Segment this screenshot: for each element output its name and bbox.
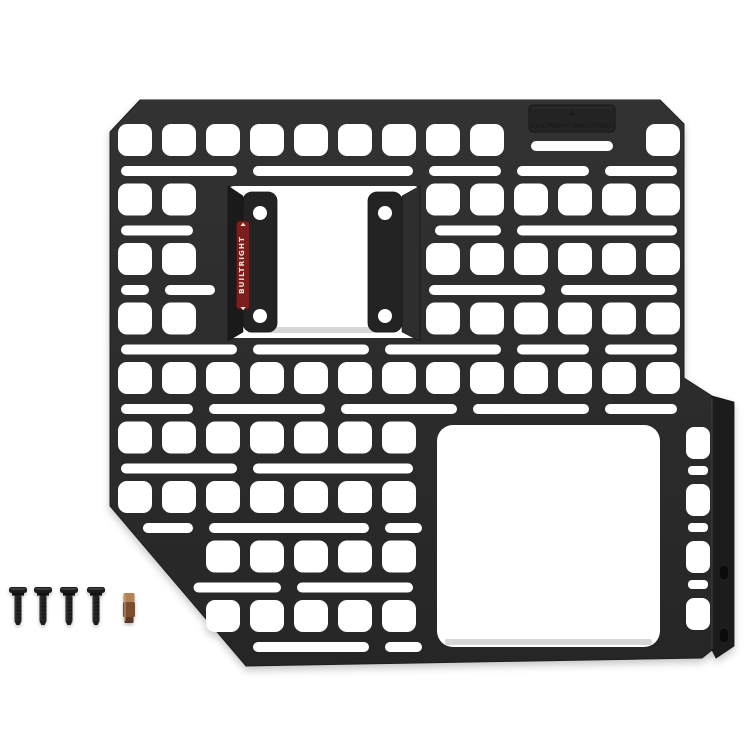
panel-slot: [209, 523, 369, 533]
screw: [9, 587, 27, 625]
flange-bolt-hole: [720, 566, 728, 579]
panel-hole: [338, 124, 372, 156]
panel-hole: [382, 362, 416, 394]
panel-hole: [118, 422, 152, 454]
panel-hole: [646, 243, 680, 275]
panel-slot: [517, 345, 589, 355]
panel-hole: [294, 124, 328, 156]
panel-slot: [121, 464, 237, 474]
panel-slot: [121, 166, 237, 176]
left-bracket-bolt-hole: [253, 206, 267, 220]
panel-slot: [385, 345, 501, 355]
panel-hole: [162, 481, 196, 513]
right-bracket-bolt-hole: [378, 206, 392, 220]
panel-slot: [429, 285, 545, 295]
panel-hole: [162, 184, 196, 216]
panel-hole: [686, 598, 710, 630]
flange-face: [712, 396, 734, 658]
panel-hole: [206, 600, 240, 632]
panel-hole: [382, 124, 416, 156]
panel-hole: [514, 184, 548, 216]
screw-neck: [90, 593, 102, 596]
panel-hole: [294, 600, 328, 632]
panel-hole: [294, 481, 328, 513]
panel-hole: [338, 600, 372, 632]
panel-hole: [382, 600, 416, 632]
screw: [34, 587, 52, 625]
screw-head-highlight: [11, 588, 26, 590]
panel-slot: [385, 642, 422, 652]
panel-hole: [686, 484, 710, 516]
panel-hole: [558, 362, 592, 394]
right-bracket-bolt-hole: [378, 309, 392, 323]
panel-slot: [605, 404, 677, 414]
panel-hole: [118, 184, 152, 216]
panel-hole: [206, 124, 240, 156]
panel-hole: [646, 303, 680, 335]
panel-hole: [206, 481, 240, 513]
panel-hole: [646, 124, 680, 156]
badge-text: BUILTRIGHT INDUSTRIES: [531, 124, 613, 130]
panel-slot: [688, 580, 708, 589]
panel-hole: [294, 422, 328, 454]
mounting-hardware: [9, 587, 135, 625]
panel-hole: [470, 243, 504, 275]
panel-slot: [561, 285, 677, 295]
panel-hole: [470, 362, 504, 394]
screw-head-highlight: [89, 588, 104, 590]
panel-slot: [385, 523, 422, 533]
mounting-flange: [712, 396, 734, 658]
screw-shaft-highlight: [93, 597, 95, 621]
panel-hole: [470, 184, 504, 216]
panel-hole: [206, 362, 240, 394]
panel-hole: [118, 124, 152, 156]
right-bracket-slant-face: [402, 186, 420, 341]
panel-hole: [206, 541, 240, 573]
brand-badge: BUILTRIGHT INDUSTRIES: [529, 105, 615, 132]
panel-hole: [250, 362, 284, 394]
screw-head-highlight: [62, 588, 77, 590]
panel-hole: [118, 481, 152, 513]
screw: [87, 587, 105, 625]
panel-slot: [517, 166, 589, 176]
panel-slot: [473, 404, 589, 414]
driver-bit: [123, 593, 135, 623]
panel-hole: [338, 541, 372, 573]
panel-slot: [688, 466, 708, 475]
panel-hole: [162, 124, 196, 156]
panel-hole: [686, 427, 710, 459]
panel-slot: [253, 166, 413, 176]
panel-hole: [206, 422, 240, 454]
panel-hole: [602, 303, 636, 335]
panel-hole: [558, 303, 592, 335]
panel-hole: [294, 541, 328, 573]
panel-hole: [426, 184, 460, 216]
screw-tip: [93, 621, 100, 625]
left-bracket-bolt-hole: [253, 309, 267, 323]
panel-slot: [297, 583, 413, 593]
screw-head-highlight: [36, 588, 51, 590]
big-cutout-edge: [445, 639, 652, 645]
screw-neck: [12, 593, 24, 596]
panel-slot: [253, 642, 369, 652]
panel-hole: [294, 362, 328, 394]
panel-hole: [118, 362, 152, 394]
panel-hole: [602, 243, 636, 275]
panel-hole: [338, 422, 372, 454]
screw-shaft-highlight: [15, 597, 17, 621]
bit-tip: [125, 617, 134, 623]
panel-hole: [250, 600, 284, 632]
panel-hole: [162, 303, 196, 335]
screw: [60, 587, 78, 625]
panel-hole: [558, 184, 592, 216]
panel-hole: [426, 303, 460, 335]
screw-neck: [37, 593, 49, 596]
panel-hole: [646, 362, 680, 394]
badge-clip-slot: [531, 141, 613, 151]
panel-slot: [605, 166, 677, 176]
panel-slot: [121, 404, 193, 414]
panel-hole: [470, 303, 504, 335]
panel-hole: [382, 481, 416, 513]
flange-bolt-hole: [720, 629, 728, 642]
panel-slot: [253, 345, 369, 355]
panel-hole: [470, 124, 504, 156]
panel-hole: [250, 541, 284, 573]
panel-hole: [558, 243, 592, 275]
panel-hole: [338, 481, 372, 513]
panel-hole: [162, 243, 196, 275]
panel-slot: [605, 345, 677, 355]
panel-slot: [429, 166, 501, 176]
panel-hole: [602, 184, 636, 216]
panel-hole: [426, 124, 460, 156]
panel-slot: [194, 583, 281, 593]
panel-slot: [165, 285, 215, 295]
panel-slot: [209, 404, 325, 414]
panel-hole: [382, 541, 416, 573]
panel-hole: [118, 303, 152, 335]
panel-hole: [602, 362, 636, 394]
panel-hole: [646, 184, 680, 216]
screw-tip: [66, 621, 73, 625]
panel-hole: [338, 362, 372, 394]
panel-hole: [426, 243, 460, 275]
panel-hole: [426, 362, 460, 394]
panel-slot: [121, 345, 237, 355]
panel-hole: [514, 303, 548, 335]
panel-slot: [435, 226, 501, 236]
panel-hole: [514, 362, 548, 394]
panel-hole: [382, 422, 416, 454]
builtright-label: BUILTRIGHT: [237, 221, 250, 310]
screw-tip: [40, 621, 47, 625]
panel-slot: [121, 226, 193, 236]
panel-hole: [162, 362, 196, 394]
panel-hole: [118, 243, 152, 275]
builtright-label-text: BUILTRIGHT: [237, 236, 246, 294]
molle-panel-illustration: BUILTRIGHT INDUSTRIES BUILTRIGHT: [0, 0, 750, 750]
panel-slot: [143, 523, 193, 533]
panel-hole: [686, 541, 710, 573]
screw-shaft-highlight: [66, 597, 68, 621]
panel-hole: [162, 422, 196, 454]
bit-highlight: [124, 594, 126, 621]
screw-shaft-highlight: [40, 597, 42, 621]
panel-slot: [121, 285, 149, 295]
panel-hole: [250, 422, 284, 454]
big-cutout: [437, 425, 660, 647]
screw-neck: [63, 593, 75, 596]
panel-hole: [514, 243, 548, 275]
panel-hole: [250, 124, 284, 156]
panel-slot: [341, 404, 457, 414]
panel-hole: [250, 481, 284, 513]
screw-tip: [15, 621, 22, 625]
panel-slot: [253, 464, 413, 474]
molle-panel: BUILTRIGHT INDUSTRIES BUILTRIGHT: [110, 100, 734, 666]
badge-bevel: [532, 107, 612, 109]
product-photo: BUILTRIGHT INDUSTRIES BUILTRIGHT: [0, 0, 750, 750]
panel-slot: [517, 226, 677, 236]
panel-slot: [688, 523, 708, 532]
